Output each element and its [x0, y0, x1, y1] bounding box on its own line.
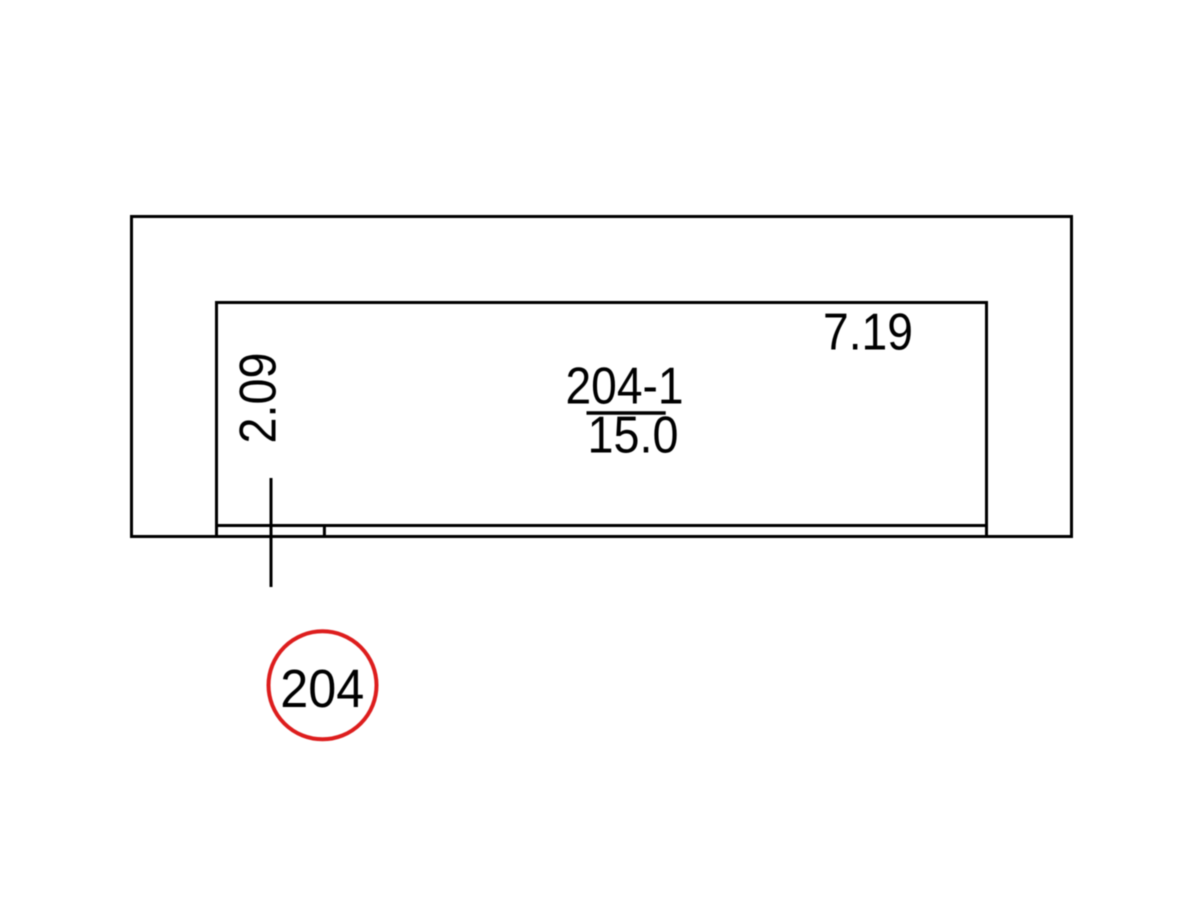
svg-text:2.09: 2.09 [230, 353, 288, 444]
svg-text:15.0: 15.0 [588, 407, 679, 465]
svg-text:7.19: 7.19 [823, 304, 913, 362]
svg-text:204: 204 [280, 659, 364, 719]
